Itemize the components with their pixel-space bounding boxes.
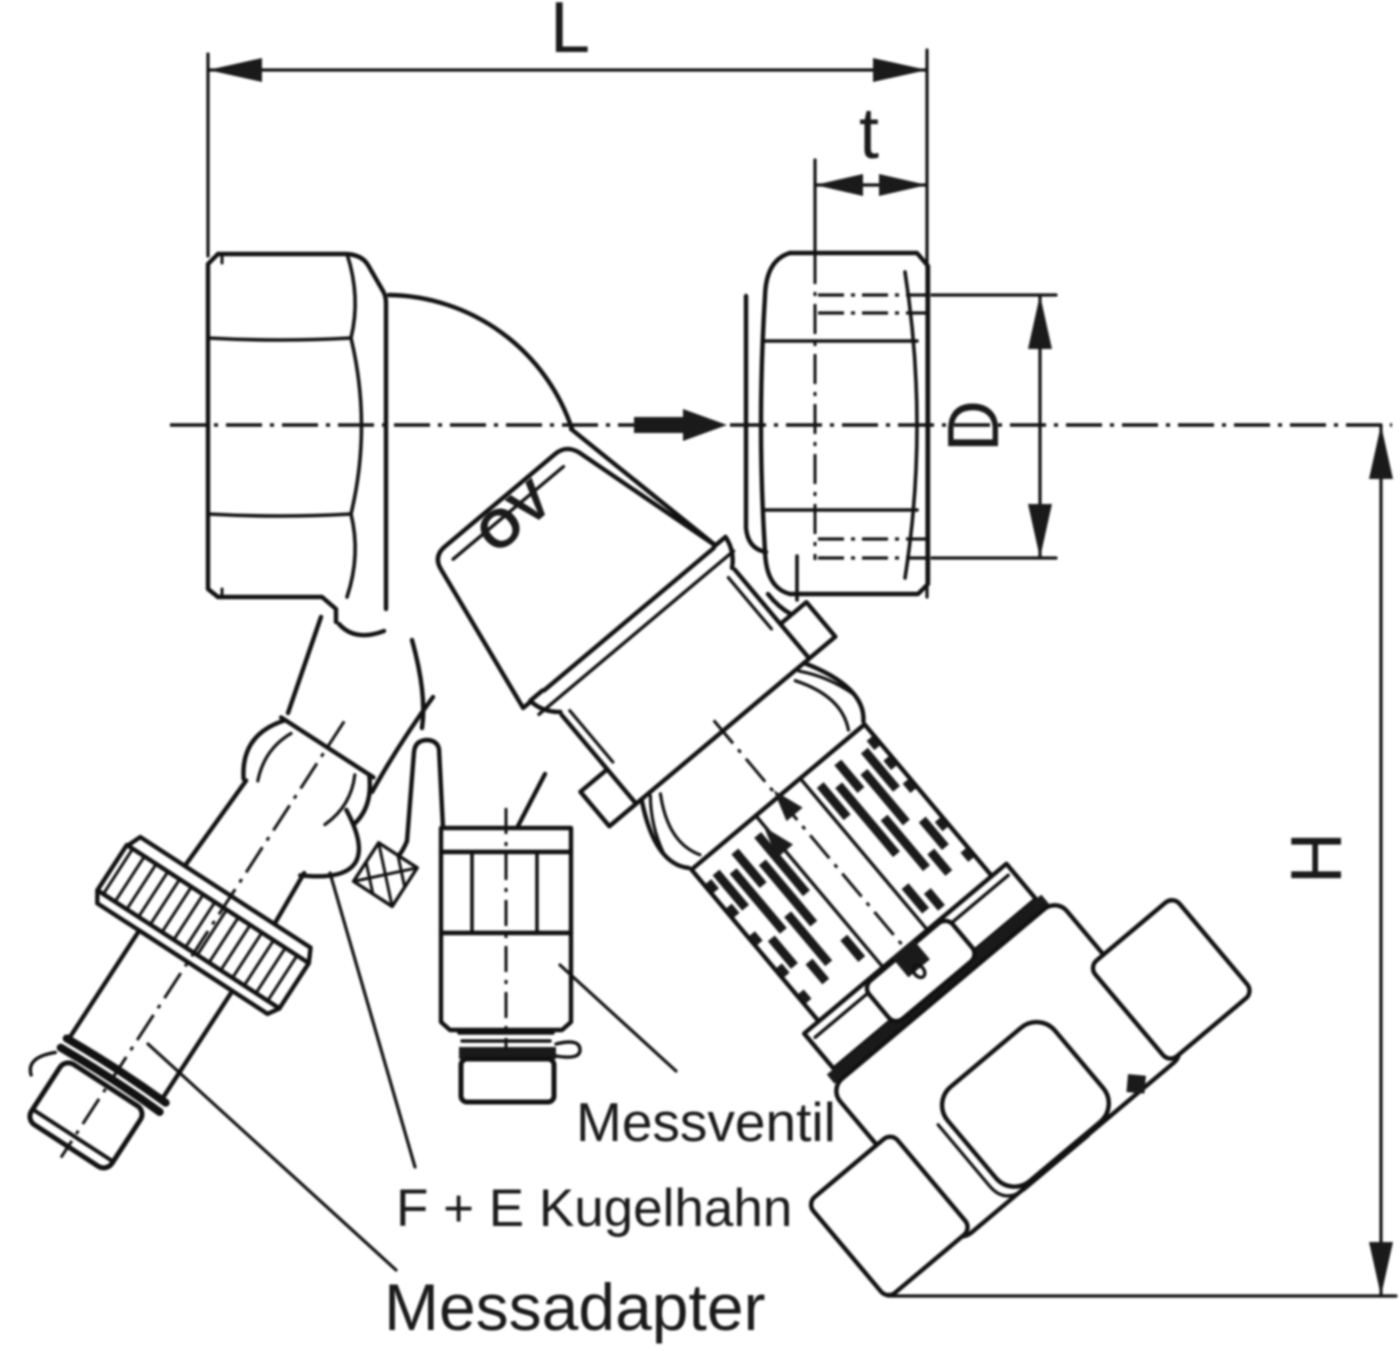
svg-text:H: H bbox=[1277, 832, 1357, 884]
svg-text:Messadapter: Messadapter bbox=[384, 1270, 766, 1344]
svg-text:Messventil: Messventil bbox=[576, 1091, 836, 1153]
svg-text:L: L bbox=[550, 0, 590, 68]
svg-text:D: D bbox=[934, 400, 1014, 452]
svg-text:t: t bbox=[859, 94, 879, 174]
svg-text:F + E Kugelhahn: F + E Kugelhahn bbox=[396, 1179, 792, 1238]
